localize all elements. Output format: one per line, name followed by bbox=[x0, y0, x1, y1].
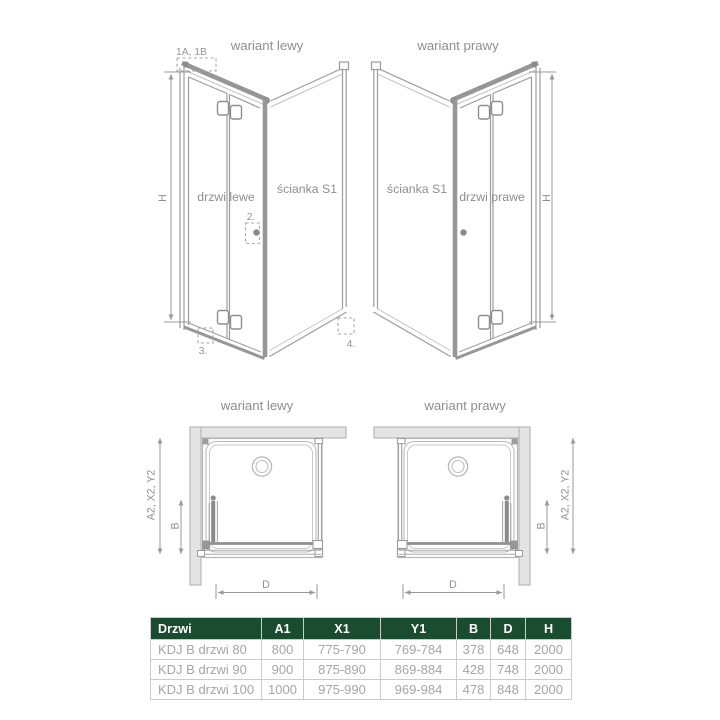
table-cell: 969-984 bbox=[381, 680, 457, 700]
dim-depth: A2, X2, Y2 bbox=[560, 438, 574, 554]
dim-door-depth-label: B bbox=[536, 522, 548, 529]
view-title: wariant prawy bbox=[416, 38, 499, 53]
callout-label-3: 3. bbox=[199, 346, 208, 357]
enclosure-drawing-mirrored bbox=[372, 61, 541, 358]
table-cell: 2000 bbox=[526, 640, 572, 660]
plan-view-left: wariant lewy A2, X2, Y2 B D bbox=[146, 398, 347, 599]
table-cell: 648 bbox=[491, 640, 526, 660]
table-header-cell: H bbox=[526, 618, 572, 640]
dim-width: D bbox=[216, 579, 317, 599]
plan-drawing-mirrored bbox=[374, 427, 530, 585]
table-cell: 869-884 bbox=[381, 660, 457, 680]
front-view-left: wariant lewy drzwi lewe ścianka S1 H 1A,… bbox=[157, 38, 355, 359]
table-header-row: Drzwi A1 X1 Y1 B D H bbox=[151, 618, 572, 640]
front-view-right: wariant prawy ścianka S1 drzwi prawe H bbox=[372, 38, 557, 359]
table-header-cell: X1 bbox=[304, 618, 381, 640]
table-cell: KDJ B drzwi 100 bbox=[151, 680, 262, 700]
table-cell: 478 bbox=[457, 680, 491, 700]
view-title: wariant prawy bbox=[423, 398, 506, 413]
callout-label-2: 2. bbox=[247, 212, 256, 223]
table-header-cell: Y1 bbox=[381, 618, 457, 640]
callout-label-4: 4. bbox=[347, 339, 356, 350]
table-cell: 2000 bbox=[526, 680, 572, 700]
table-cell: 775-790 bbox=[304, 640, 381, 660]
callout-label-1a1b: 1A, 1B bbox=[176, 47, 207, 58]
table-cell: 875-890 bbox=[304, 660, 381, 680]
spec-sheet: wariant lewy drzwi lewe ścianka S1 H 1A,… bbox=[0, 0, 720, 720]
dim-height: H bbox=[157, 72, 191, 322]
dim-height-label: H bbox=[541, 194, 553, 202]
wall-label: ścianka S1 bbox=[387, 182, 447, 196]
table-row: KDJ B drzwi 80 800 775-790 769-784 378 6… bbox=[151, 640, 572, 660]
table-header-cell: A1 bbox=[262, 618, 304, 640]
enclosure-drawing bbox=[180, 61, 349, 358]
door-label: drzwi prawe bbox=[459, 190, 525, 204]
table-cell: 2000 bbox=[526, 660, 572, 680]
table-cell: 1000 bbox=[262, 680, 304, 700]
table-cell: 975-990 bbox=[304, 680, 381, 700]
plan-drawing bbox=[190, 427, 346, 585]
dim-door-depth-label: B bbox=[170, 522, 182, 529]
table-header-cell: Drzwi bbox=[151, 618, 262, 640]
diagram-canvas: wariant lewy drzwi lewe ścianka S1 H 1A,… bbox=[0, 0, 720, 720]
door-label: drzwi lewe bbox=[197, 190, 255, 204]
dim-width: D bbox=[403, 579, 504, 599]
table-cell: 378 bbox=[457, 640, 491, 660]
table-header-cell: D bbox=[491, 618, 526, 640]
dim-depth-label: A2, X2, Y2 bbox=[146, 470, 158, 521]
table-row: KDJ B drzwi 100 1000 975-990 969-984 478… bbox=[151, 680, 572, 700]
view-title: wariant lewy bbox=[220, 398, 294, 413]
plan-view-right: wariant prawy A2, X2, Y2 B D bbox=[374, 398, 573, 599]
dim-depth: A2, X2, Y2 bbox=[146, 438, 161, 554]
dimension-table: Drzwi A1 X1 Y1 B D H KDJ B drzwi 80 800 … bbox=[150, 617, 572, 700]
dim-door-depth: B bbox=[536, 500, 548, 554]
dim-depth-label: A2, X2, Y2 bbox=[560, 470, 572, 521]
table-row: KDJ B drzwi 90 900 875-890 869-884 428 7… bbox=[151, 660, 572, 680]
wall-label: ścianka S1 bbox=[277, 182, 337, 196]
table-cell: 769-784 bbox=[381, 640, 457, 660]
table-cell: 800 bbox=[262, 640, 304, 660]
table-cell: KDJ B drzwi 80 bbox=[151, 640, 262, 660]
dim-height-label: H bbox=[157, 194, 169, 202]
table-cell: KDJ B drzwi 90 bbox=[151, 660, 262, 680]
view-title: wariant lewy bbox=[230, 38, 304, 53]
table-header-cell: B bbox=[457, 618, 491, 640]
table-cell: 900 bbox=[262, 660, 304, 680]
table-cell: 748 bbox=[491, 660, 526, 680]
table-cell: 428 bbox=[457, 660, 491, 680]
table-cell: 848 bbox=[491, 680, 526, 700]
dim-height: H bbox=[529, 72, 556, 322]
callout-box-4 bbox=[338, 318, 354, 334]
dim-door-depth: B bbox=[170, 500, 182, 554]
dim-width-label: D bbox=[449, 579, 457, 591]
dim-width-label: D bbox=[262, 579, 270, 591]
